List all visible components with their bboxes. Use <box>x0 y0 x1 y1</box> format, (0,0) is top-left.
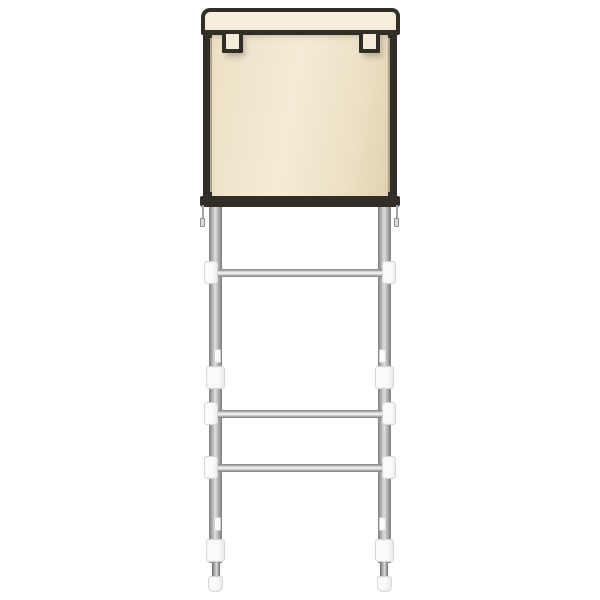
cover-tab-left <box>222 30 243 53</box>
cover-bottom-trim <box>200 196 400 207</box>
fabric-cover <box>0 0 600 600</box>
zipper-wire-left <box>202 205 204 219</box>
zipper-tag-left <box>200 218 205 227</box>
zipper-pull-right <box>394 205 400 229</box>
zipper-tag-right <box>394 218 399 227</box>
cover-front-panel <box>203 33 397 198</box>
zipper-track-left <box>210 38 212 192</box>
zipper-track-right <box>388 38 390 192</box>
zipper-wire-right <box>396 205 398 219</box>
cover-tab-right <box>359 30 380 53</box>
zipper-pull-left <box>200 205 206 229</box>
product-photo <box>0 0 600 600</box>
